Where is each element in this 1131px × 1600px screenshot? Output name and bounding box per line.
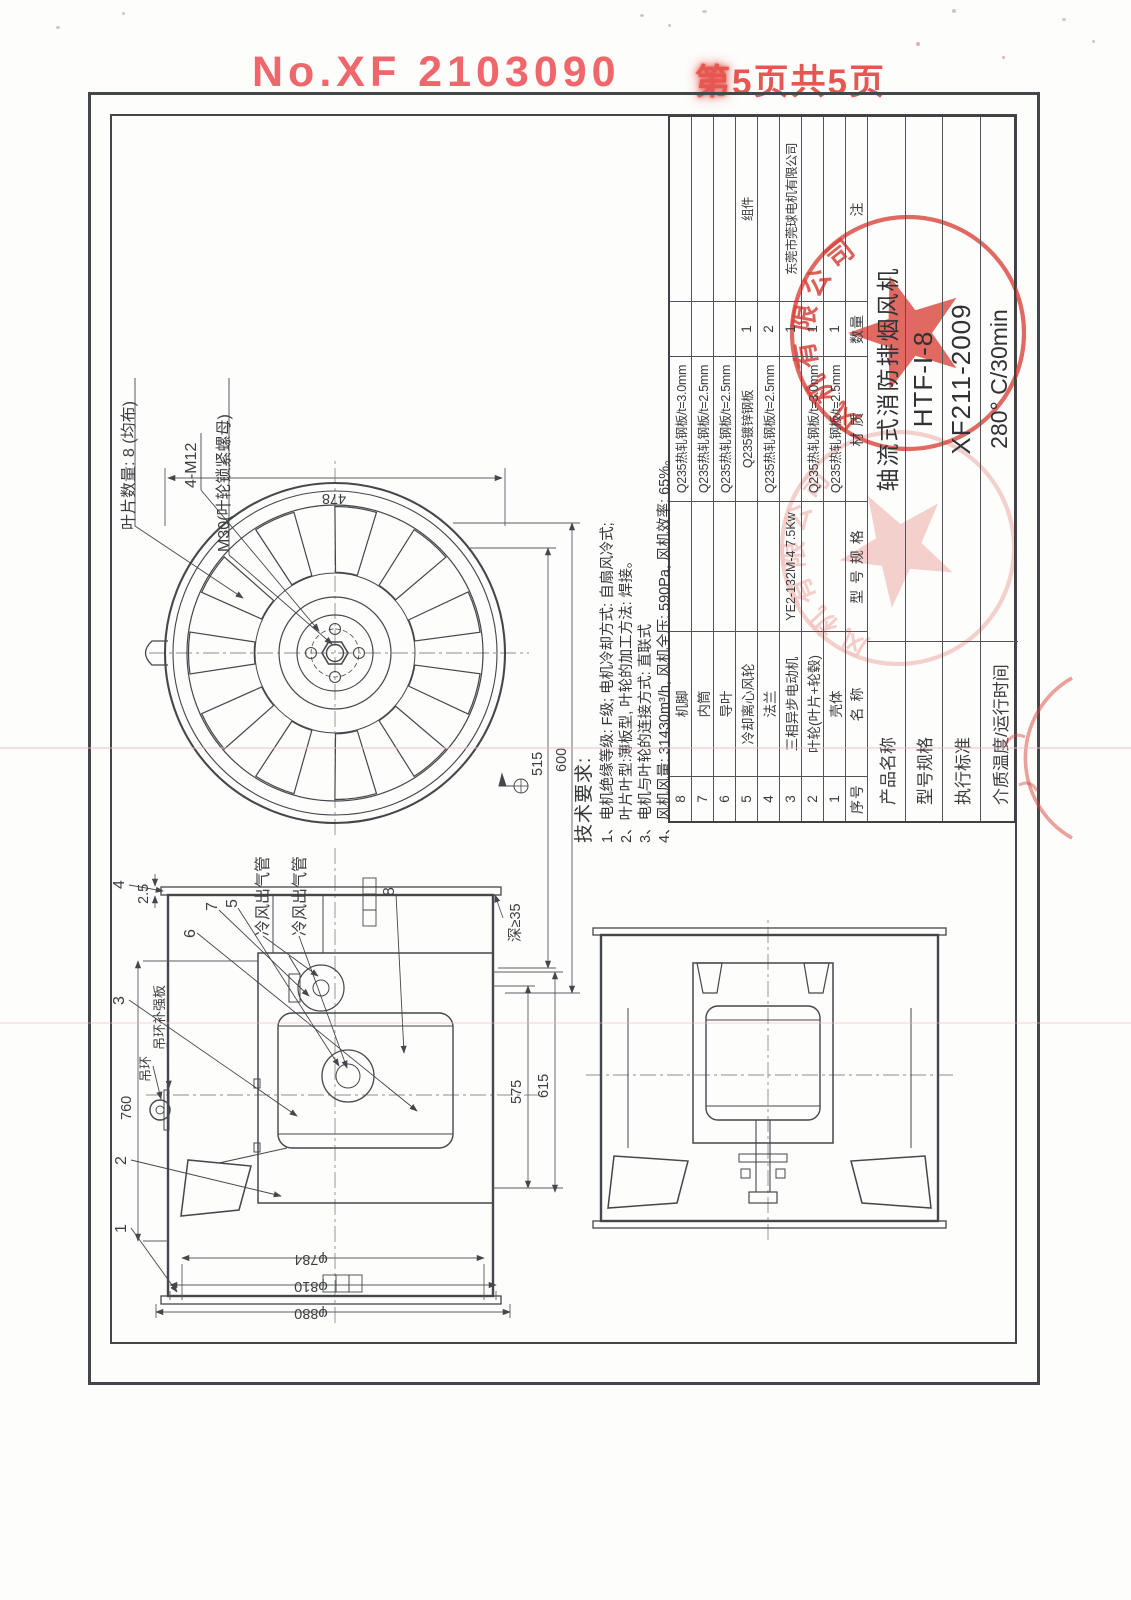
nut-label: M30(叶轮锁紧螺母) [210,414,234,552]
partial-seal [975,635,1131,875]
part-qty [692,301,714,356]
part-material: Q235热轧钢板/t=2.5mm [758,356,780,501]
part-qty: 1 [802,301,824,356]
side-view-2 [586,916,953,1240]
part-note [758,117,780,301]
scan-speckle [952,9,956,13]
impeller-blade-section [181,1160,251,1216]
model-value: HTF-I-8 [906,117,944,641]
part-material [780,356,802,501]
part-spec [692,501,714,631]
scan-speckle [56,26,60,29]
col-header-material: 材 质 [846,356,868,501]
scan-speckle [702,10,707,13]
tech-requirement-item: 3、电机与叶轮的连接方式: 直联式 [637,393,656,843]
product-name-label: 产品名称 [868,641,906,821]
dim-575: 575 [509,1080,525,1104]
callout-4: 4 [111,880,129,889]
scan-speckle [1002,56,1005,59]
part-name: 法兰 [758,631,780,776]
part-qty [714,301,736,356]
scan-speckle [668,24,671,27]
part-no: 1 [824,776,846,821]
part-material: Q235热轧钢板/t=2.5mm [692,356,714,501]
blade-count-label: 叶片数量: 8 (均布) [115,401,139,530]
part-material: Q235热轧钢板/t=3.0mm [802,356,824,501]
temp-duration-value: 280° C/30min [981,117,1019,641]
callout-7: 7 [204,902,222,911]
callout-5: 5 [224,899,242,908]
part-name: 三相异步电动机 [780,631,802,776]
dim-600: 600 [554,748,570,772]
part-name: 叶轮(叶片+轮毂) [802,631,824,776]
part-no: 6 [714,776,736,821]
part-qty [670,301,692,356]
motor-section [278,1013,453,1148]
part-spec [758,501,780,631]
lift-plate-label: 吊环补强板 [149,985,168,1050]
part-note [692,117,714,301]
bolt-label: 4-M12 [183,443,201,488]
part-spec [736,501,758,631]
col-header-spec: 型 号 规 格 [846,501,868,631]
part-no: 7 [692,776,714,821]
standard-value: XF211-2009 [943,117,981,641]
doc-number: No.XF 2103090 [252,48,621,97]
col-header-seq: 序号 [846,776,868,821]
part-no: 2 [802,776,824,821]
cooling-pipe-label: 冷风出气管 [286,856,310,936]
drawing-sheet: 风机有限公司 [91,95,1043,1388]
part-note [714,117,736,301]
part-note: 组件 [736,117,758,301]
side-view-1 [129,848,563,1323]
part-no: 4 [758,776,780,821]
model-label: 型号规格 [906,641,944,821]
dim-depth: 深≥35 [504,903,525,942]
dim-478: 478 [322,490,346,506]
title-block-table: 8机脚Q235热轧钢板/t=3.0mm 7内筒Q235热轧钢板/t=2.5mm … [668,115,1016,823]
part-material: Q235热轧钢板/t=2.5mm [714,356,736,501]
dim-dia-880: φ880 [294,1305,328,1321]
part-name: 冷却离心风轮 [736,631,758,776]
part-name: 导叶 [714,631,736,776]
callout-1: 1 [113,1224,131,1233]
parts-table: 8机脚Q235热轧钢板/t=3.0mm 7内筒Q235热轧钢板/t=2.5mm … [670,117,868,821]
tech-requirement-item: 1、电机绝缘等级: F级; 电机冷却方式: 自扇风冷式; [599,393,618,843]
part-material: Q235镀锌钢板 [736,356,758,501]
callout-2: 2 [113,1156,131,1165]
part-qty: 1 [736,301,758,356]
scan-speckle [1092,40,1095,43]
datum-symbol [499,774,528,793]
dim-dia-784: φ784 [294,1251,328,1267]
part-note [802,117,824,301]
scan-artifact-line [0,1022,1131,1024]
scan-artifact-line [0,747,1131,749]
scanned-drawing-page: No.XF 2103090 第5页共5页 风机有限公司 [0,0,1131,1600]
tech-requirements: 技术要求: 1、电机绝缘等级: F级; 电机冷却方式: 自扇风冷式; 2、叶片叶… [569,393,675,843]
part-no: 3 [780,776,802,821]
cooling-pipe-label: 冷风出气管 [249,856,273,936]
part-qty: 1 [824,301,846,356]
part-note [670,117,692,301]
part-note: 东莞市莞球电机有限公司 [780,117,802,301]
dim-760: 760 [119,1096,135,1120]
part-spec [824,501,846,631]
part-material: Q235热轧钢板/t=2.5mm [824,356,846,501]
drawing-sheet-border: 风机有限公司 [88,92,1040,1385]
part-name: 内筒 [692,631,714,776]
scan-speckle [1062,18,1066,21]
callout-3: 3 [111,996,129,1005]
front-view [135,378,580,993]
callout-8: 8 [381,887,399,896]
scan-speckle [122,12,125,15]
part-spec [802,501,824,631]
lift-ring-label: 吊环 [135,1056,154,1082]
product-name-value: 轴流式消防排烟风机 [868,117,906,641]
part-qty: 1 [780,301,802,356]
part-qty: 2 [758,301,780,356]
callout-6: 6 [182,929,200,938]
col-header-qty: 数量 [846,301,868,356]
part-note [824,117,846,301]
part-spec: YE2-132M-4 7.5Kw [780,501,802,631]
dim-2-5: 2.5 [136,884,152,904]
cooling-fan-scroll [298,965,344,1011]
part-name: 壳体 [824,631,846,776]
scan-speckle [916,42,920,46]
tech-requirement-item: 4、风机风量: 31430m³/h, 风机全压: 590Pa, 风机效率: 65… [656,393,675,843]
dim-615: 615 [536,1074,552,1098]
tech-requirements-title: 技术要求: [569,393,596,843]
dim-dia-810: φ810 [294,1278,328,1294]
part-no: 5 [736,776,758,821]
col-header-note: 注 [846,117,868,301]
scan-speckle [640,14,644,17]
part-spec [714,501,736,631]
dim-515: 515 [530,752,546,776]
tech-requirement-item: 2、叶片叶型:薄板型, 叶轮的加工方法: 焊接。 [618,393,637,843]
col-header-name: 名 称 [846,631,868,776]
